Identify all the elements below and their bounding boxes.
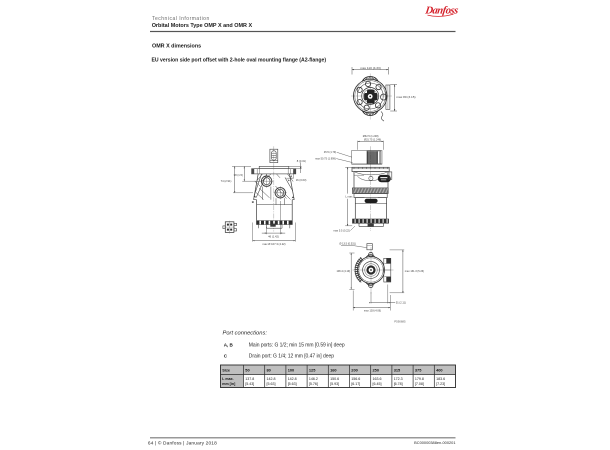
svg-text:[5.63]: [5.63]	[267, 382, 276, 386]
svg-text:[7.08]: [7.08]	[415, 382, 424, 386]
svg-text:max 80 (3.15): max 80 (3.15)	[396, 95, 415, 99]
svg-text:Danfoss: Danfoss	[424, 5, 459, 16]
svg-text:142.8: 142.8	[267, 377, 276, 381]
svg-text:64 | © Danfoss | January 2018: 64 | © Danfoss | January 2018	[148, 439, 217, 446]
svg-text:38 (1.5): 38 (1.5)	[234, 173, 243, 177]
svg-text:[5.93]: [5.93]	[330, 382, 339, 386]
svg-text:125: 125	[309, 368, 316, 373]
svg-text:[5.63]: [5.63]	[288, 382, 297, 386]
svg-text:51 (2.11): 51 (2.11)	[396, 301, 406, 305]
svg-text:142.8: 142.8	[288, 377, 297, 381]
svg-text:max Ø 107.3 (4.22): max Ø 107.3 (4.22)	[262, 242, 285, 246]
svg-text:P590685: P590685	[394, 319, 406, 323]
svg-text:[6.45]: [6.45]	[373, 382, 382, 386]
svg-text:250: 250	[373, 368, 380, 373]
svg-text:74 (2.91): 74 (2.91)	[221, 179, 232, 183]
svg-text:Size: Size	[222, 368, 231, 373]
svg-text:156.6: 156.6	[351, 377, 360, 381]
svg-text:A, B: A, B	[224, 342, 234, 347]
svg-text:375: 375	[415, 368, 422, 373]
svg-text:mm [in]: mm [in]	[222, 382, 235, 386]
svg-text:max 50.75 (1.999): max 50.75 (1.999)	[315, 156, 336, 160]
svg-text:max 110 (4.33): max 110 (4.33)	[360, 66, 381, 70]
svg-text:16 (0.63): 16 (0.63)	[296, 178, 307, 182]
svg-text:max 131.3 (5.26): max 131.3 (5.26)	[405, 269, 424, 273]
svg-text:[5.76]: [5.76]	[309, 382, 318, 386]
svg-text:106.4 (4.19): 106.4 (4.19)	[336, 269, 350, 273]
svg-text:L max: L max	[345, 194, 353, 198]
svg-text:Orbital Motors Type OMP X and: Orbital Motors Type OMP X and OMR X	[152, 23, 253, 29]
svg-text:BC00000388en-000201: BC00000388en-000201	[414, 440, 455, 445]
svg-text:80: 80	[267, 368, 271, 373]
svg-text:max 5.5 (0.22): max 5.5 (0.22)	[333, 229, 350, 233]
svg-text:OMR X dimensions: OMR X dimensions	[152, 43, 201, 49]
svg-text:[6.17]: [6.17]	[351, 382, 360, 386]
svg-text:[5.43]: [5.43]	[245, 382, 254, 386]
svg-text:160: 160	[330, 368, 337, 373]
svg-text:100: 100	[288, 368, 295, 373]
svg-text:Ø31.75 (1.246): Ø31.75 (1.246)	[364, 137, 381, 141]
svg-text:200: 200	[351, 368, 358, 373]
svg-text:EU version side port offset wi: EU version side port offset with 2-hole …	[152, 58, 327, 64]
svg-text:Port connections:: Port connections:	[223, 330, 268, 336]
svg-text:[6.78]: [6.78]	[394, 382, 403, 386]
svg-text:Drain port: G 1/4; 12 mm [0.47: Drain port: G 1/4; 12 mm [0.47 in] deep	[249, 353, 334, 359]
svg-text:B: B	[252, 200, 254, 204]
svg-text:46 (1.42): 46 (1.42)	[268, 235, 279, 239]
svg-text:315: 315	[394, 368, 401, 373]
svg-text:400: 400	[436, 368, 443, 373]
svg-text:[7.23]: [7.23]	[436, 382, 445, 386]
svg-text:183.6: 183.6	[436, 377, 445, 381]
svg-text:Ø 13.5 (0.531): Ø 13.5 (0.531)	[339, 241, 356, 245]
svg-text:Main ports: G 1/2; min 15 mm [: Main ports: G 1/2; min 15 mm [0.59 in] d…	[249, 342, 345, 348]
svg-text:163.6: 163.6	[373, 377, 382, 381]
svg-text:50: 50	[245, 368, 249, 373]
svg-text:Technical Information: Technical Information	[152, 16, 210, 22]
svg-text:146.2: 146.2	[309, 377, 318, 381]
svg-text:150.6: 150.6	[330, 377, 339, 381]
svg-text:8 (0.31): 8 (0.31)	[297, 159, 306, 163]
svg-text:137.8: 137.8	[245, 377, 254, 381]
svg-text:L max.: L max.	[222, 377, 233, 381]
svg-text:C: C	[224, 353, 228, 358]
svg-text:179.8: 179.8	[415, 377, 424, 381]
svg-text:max 103 (4.06): max 103 (4.06)	[364, 309, 381, 313]
svg-text:45.5 (1.79): 45.5 (1.79)	[324, 150, 336, 154]
svg-text:172.3: 172.3	[394, 377, 403, 381]
